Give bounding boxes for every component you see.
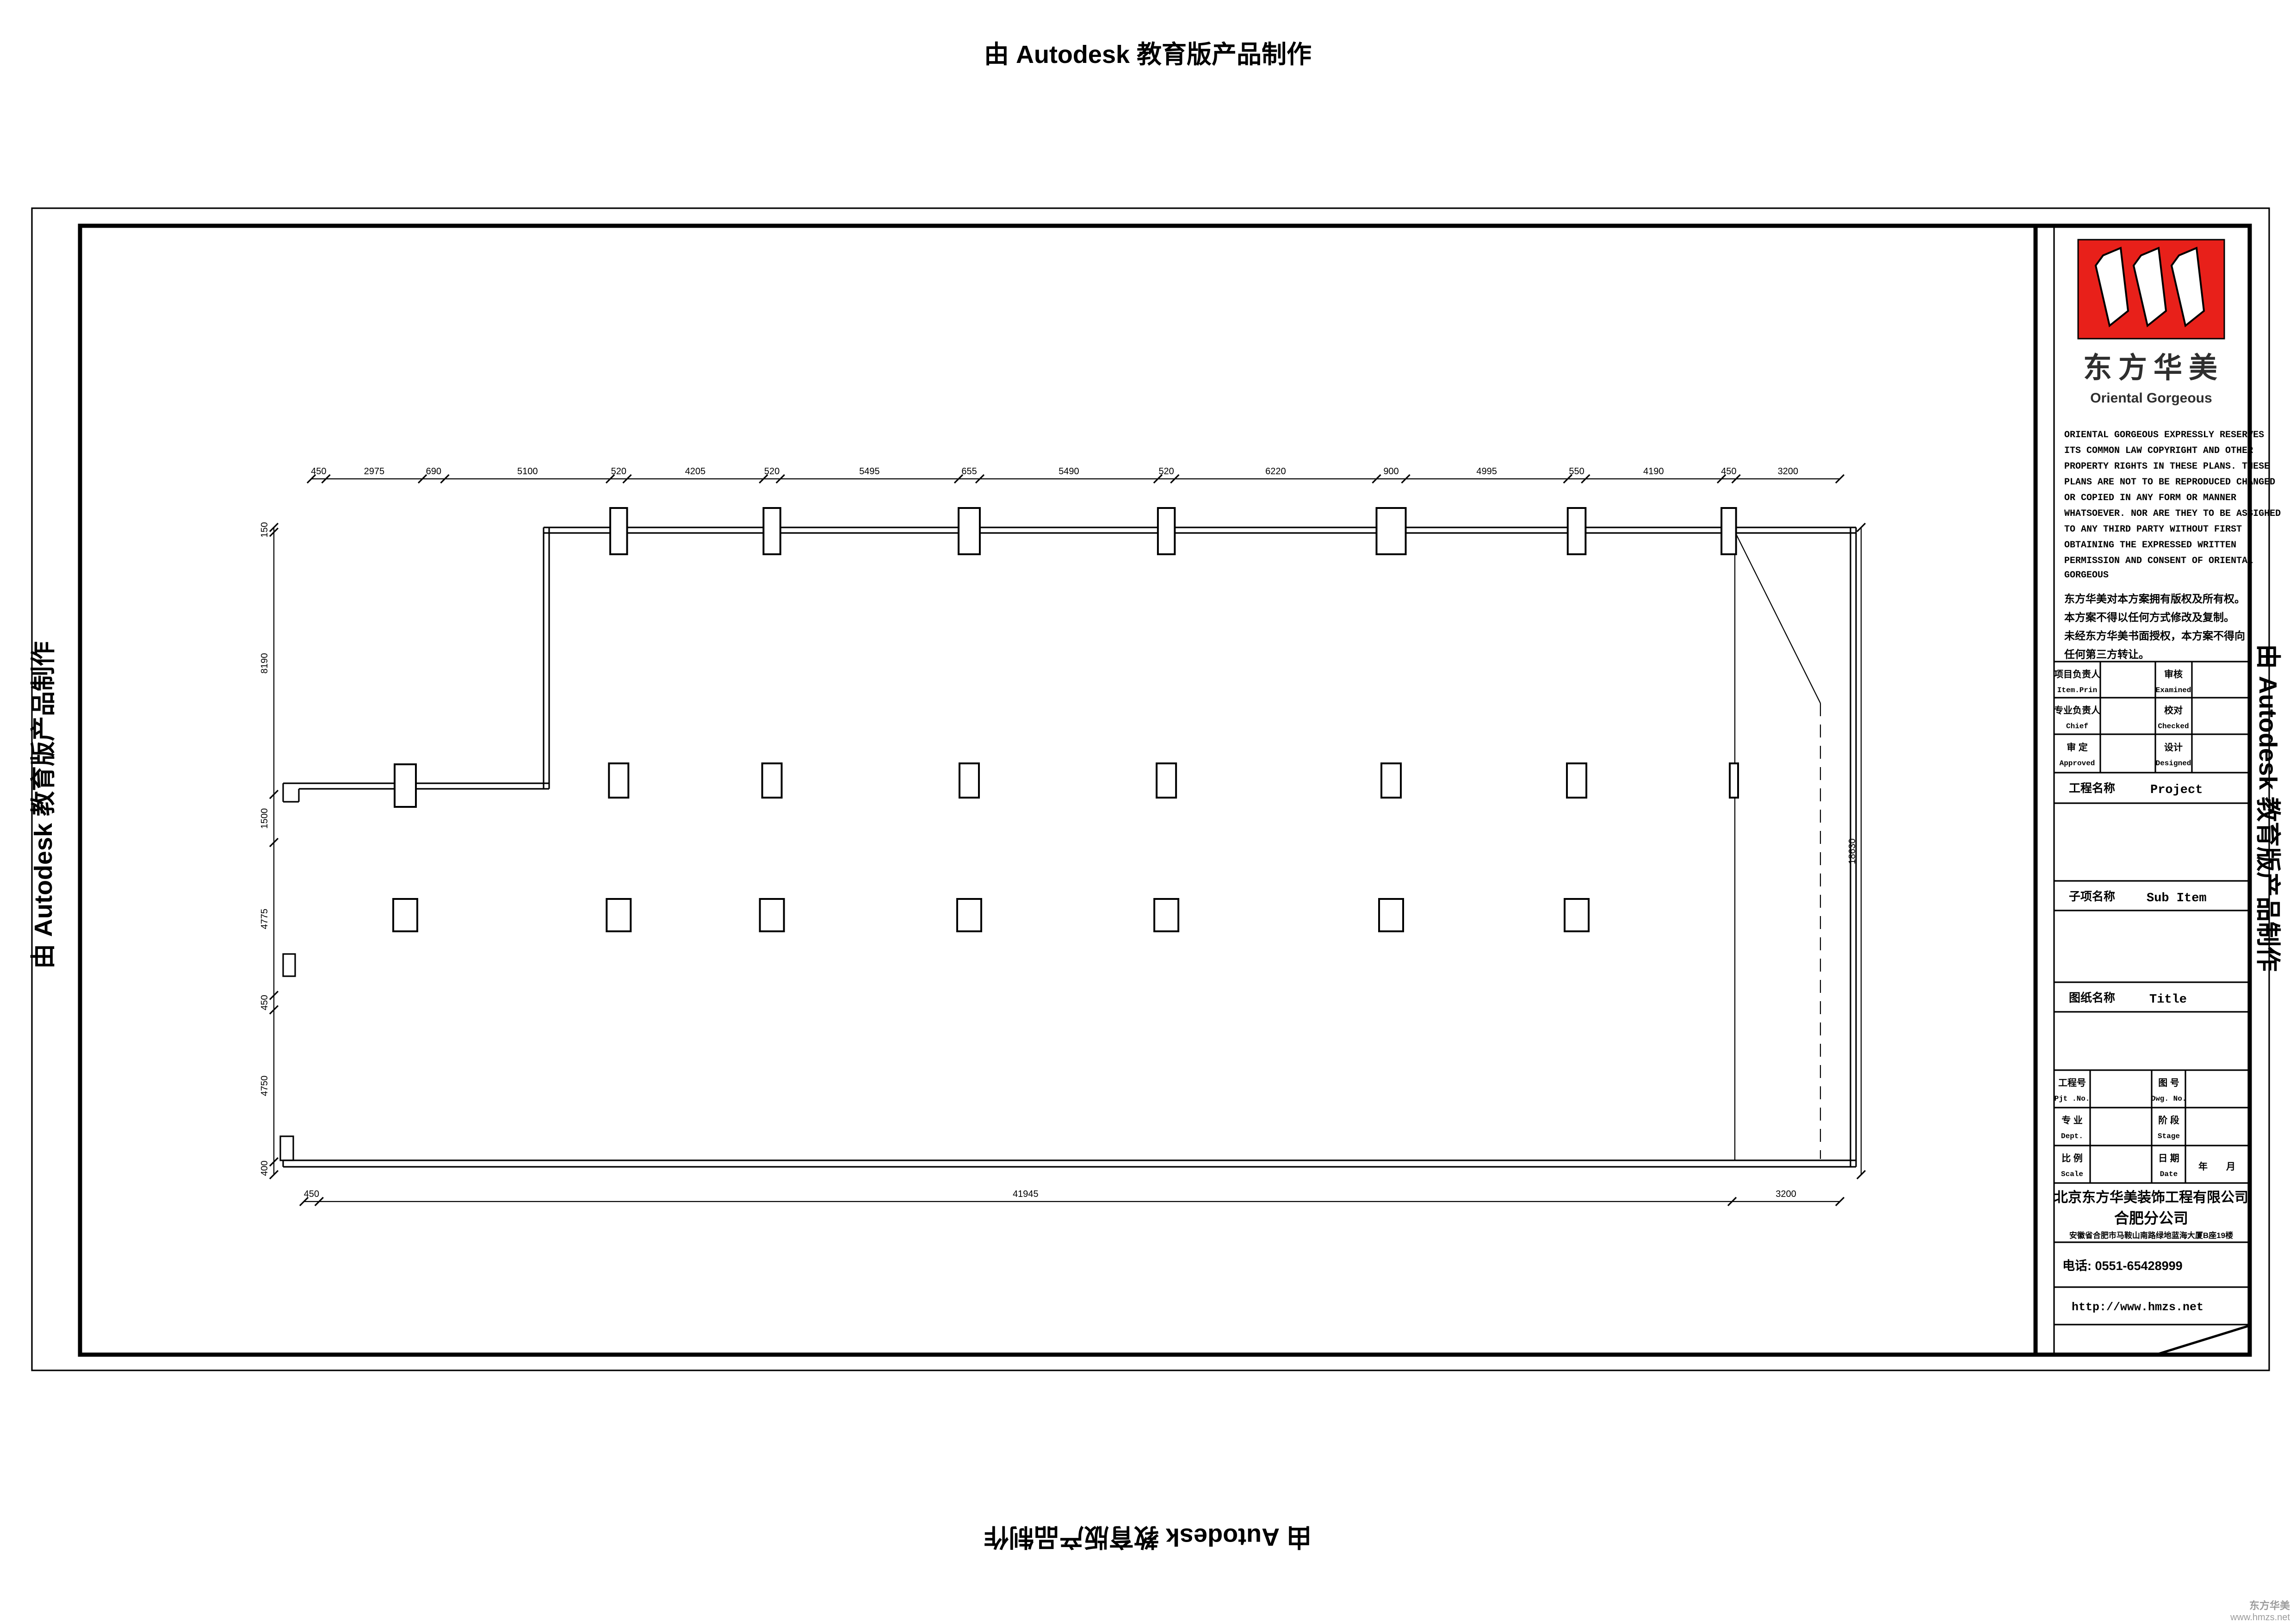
sign-label: 专业负责人 [2054, 705, 2101, 716]
copyright-line: TO ANY THIRD PARTY WITHOUT FIRST [2064, 524, 2242, 535]
autodesk-stamp-right: 由 Autodesk 教育版产品制作 [2254, 644, 2282, 972]
column [395, 764, 416, 807]
dim-label: 900 [1383, 466, 1399, 477]
dim-label: 520 [611, 466, 626, 477]
info-label: Date [2160, 1170, 2178, 1178]
plan-dimensions: 4502975690510052042055205495655549052062… [260, 466, 1865, 1206]
dim-label: 4995 [1476, 466, 1497, 477]
dim-label: 4750 [260, 1076, 270, 1096]
dim-label: 450 [260, 995, 270, 1010]
sign-label: 项目负责人 [2054, 669, 2101, 680]
sign-label: Examined [2156, 686, 2191, 694]
copyright-cn-line: 本方案不得以任何方式修改及复制。 [2064, 611, 2234, 623]
dim-label: 450 [1721, 466, 1736, 477]
copyright-line: OBTAINING THE EXPRESSED WRITTEN [2064, 540, 2236, 551]
drawing-sheet: 由 Autodesk 教育版产品制作 由 Autodesk 教育版产品制作 由 … [0, 0, 2296, 1623]
copyright-cn-line: 东方华美对本方案拥有版权及所有权。 [2064, 593, 2245, 605]
watermark: 东方华美 www.hmzs.net [2230, 1600, 2290, 1623]
brand-name-cn: 东方华美 [2083, 352, 2224, 384]
sign-label: 校对 [2164, 705, 2183, 716]
copyright-line: WHATSOEVER. NOR ARE THEY TO BE ASSIGHED [2064, 508, 2281, 519]
info-label: Stage [2158, 1132, 2180, 1140]
dim-label: 550 [1569, 466, 1584, 477]
info-label: 工程号 [2058, 1078, 2086, 1088]
subitem-label-cn: 子项名称 [2069, 890, 2115, 903]
column [763, 508, 780, 554]
column [959, 763, 979, 798]
info-label: 比 例 [2061, 1152, 2083, 1164]
autodesk-stamp-bottom: 由 Autodesk 教育版产品制作 [984, 1523, 1312, 1551]
copyright-line: PROPERTY RIGHTS IN THESE PLANS. THESE [2064, 461, 2270, 472]
name-sections: 工程名称 Project 子项名称 Sub Item 图纸名称 Title [2054, 781, 2248, 1070]
company-branch: 合肥分公司 [2114, 1210, 2188, 1227]
dim-label: 150 [260, 522, 270, 538]
dim-label: 655 [961, 466, 977, 477]
dim-label: 41945 [1013, 1189, 1039, 1199]
brand-name-en: Oriental Gorgeous [2090, 390, 2212, 406]
title-label-en: Title [2149, 993, 2187, 1007]
info-label: 专 业 [2061, 1115, 2083, 1126]
dim-label: 400 [260, 1160, 270, 1176]
project-label-en: Project [2150, 783, 2203, 797]
column [1379, 899, 1403, 931]
column [393, 899, 417, 931]
dim-label: 5495 [859, 466, 880, 477]
autodesk-stamp-top: 由 Autodesk 教育版产品制作 [984, 41, 1312, 68]
info-label: Scale [2061, 1170, 2083, 1178]
info-label: 日 期 [2158, 1153, 2179, 1164]
sign-label: Checked [2158, 722, 2189, 731]
company-block: 北京东方华美装饰工程有限公司 合肥分公司 安徽省合肥市马鞍山南路绿地蓝海大厦B座… [2054, 1189, 2248, 1355]
date-placeholder: 年 月 [2198, 1161, 2235, 1172]
column [957, 899, 981, 931]
info-label: Dwg. No. [2151, 1095, 2187, 1103]
corner-diagonal-line [1736, 534, 1820, 703]
column [1568, 508, 1586, 554]
column [1567, 763, 1586, 798]
copyright-line: OR COPIED IN ANY FORM OR MANNER [2064, 493, 2236, 503]
sign-label: 设计 [2164, 742, 2183, 753]
dim-label: 2975 [364, 466, 385, 477]
company-address: 安徽省合肥市马鞍山南路绿地蓝海大厦B座19楼 [2069, 1231, 2233, 1240]
column [1157, 763, 1176, 798]
column [606, 899, 631, 931]
plan-walls [280, 527, 1856, 1167]
title-block: 东方华美 Oriental Gorgeous ORIENTAL GORGEOUS… [2036, 226, 2281, 1355]
copyright-line: PLANS ARE NOT TO BE REPRODUCED CHANGED [2064, 477, 2275, 488]
sign-label: Item.Prin [2057, 686, 2097, 694]
copyright-line: ORIENTAL GORGEOUS EXPRESSLY RESERVES [2064, 430, 2264, 440]
dim-label: 3200 [1778, 466, 1799, 477]
dim-label: 690 [426, 466, 441, 477]
project-label-cn: 工程名称 [2069, 781, 2115, 795]
logo-box: 东方华美 Oriental Gorgeous [2078, 240, 2224, 406]
corner-fold-line [2156, 1326, 2248, 1355]
column [610, 508, 627, 554]
company-name: 北京东方华美装饰工程有限公司 [2054, 1189, 2248, 1205]
company-website: http://www.hmzs.net [2072, 1301, 2203, 1314]
copyright-line: ITS COMMON LAW COPYRIGHT AND OTHER [2064, 446, 2253, 456]
sign-label: Chief [2066, 722, 2088, 731]
copyright-cn-line: 未经东方华美书面授权，本方案不得向 [2064, 630, 2245, 642]
column [1721, 508, 1736, 554]
dim-label: 450 [304, 1189, 319, 1199]
dim-label: 450 [311, 466, 326, 477]
dim-label: 520 [764, 466, 780, 477]
column [1154, 899, 1178, 931]
subitem-label-en: Sub Item [2147, 892, 2207, 905]
sign-label: Designed [2156, 759, 2191, 768]
bottom-left-pier [280, 1136, 293, 1160]
signature-table: 项目负责人 Item.Prin 审核 Examined 专业负责人 Chief … [2054, 662, 2248, 773]
sign-label: 审 定 [2067, 742, 2088, 753]
column [1381, 763, 1401, 798]
column [1158, 508, 1175, 554]
title-label-cn: 图纸名称 [2069, 991, 2115, 1004]
sign-label: 审核 [2164, 669, 2183, 680]
copyright-line: GORGEOUS [2064, 570, 2109, 581]
column [1565, 899, 1589, 931]
column [1730, 763, 1738, 798]
dim-label: 3200 [1776, 1189, 1796, 1199]
info-label: 图 号 [2158, 1078, 2179, 1088]
dim-label: 8190 [260, 653, 270, 674]
copyright-cn-line: 任何第三方转让。 [2064, 648, 2149, 660]
info-label: Pjt .No. [2055, 1095, 2090, 1103]
plan-columns [393, 508, 1738, 931]
dim-label: 5490 [1058, 466, 1079, 477]
dim-label: 5100 [517, 466, 538, 477]
watermark-url: www.hmzs.net [2230, 1612, 2290, 1623]
info-label: 阶 段 [2158, 1115, 2179, 1126]
dim-label: 4775 [260, 909, 270, 929]
company-phone: 电话: 0551-65428999 [2062, 1259, 2183, 1273]
dim-label: 4190 [1643, 466, 1664, 477]
dim-label: 1500 [260, 808, 270, 829]
dim-label: 18630 [1847, 838, 1857, 864]
sign-label: Approved [2060, 759, 2095, 768]
column [609, 763, 628, 798]
watermark-brand: 东方华美 [2249, 1600, 2290, 1611]
small-pier [283, 954, 295, 976]
copyright-line: PERMISSION AND CONSENT OF ORIENTAL [2064, 556, 2253, 566]
column [959, 508, 980, 554]
info-table: 工程号 Pjt .No. 图 号 Dwg. No. 专 业 Dept. 阶 段 … [2054, 1070, 2248, 1183]
dim-label: 6220 [1265, 466, 1286, 477]
autodesk-stamp-left: 由 Autodesk 教育版产品制作 [30, 641, 57, 969]
logo-mark-icon [2096, 248, 2204, 326]
copyright-chinese: 东方华美对本方案拥有版权及所有权。 本方案不得以任何方式修改及复制。 未经东方华… [2064, 593, 2245, 660]
info-label: Dept. [2061, 1132, 2083, 1140]
autodesk-plot-stamps: 由 Autodesk 教育版产品制作 由 Autodesk 教育版产品制作 由 … [30, 41, 2282, 1551]
dim-label: 520 [1158, 466, 1174, 477]
dim-label: 4205 [685, 466, 706, 477]
column [762, 763, 782, 798]
column [1376, 508, 1405, 554]
column [760, 899, 784, 931]
